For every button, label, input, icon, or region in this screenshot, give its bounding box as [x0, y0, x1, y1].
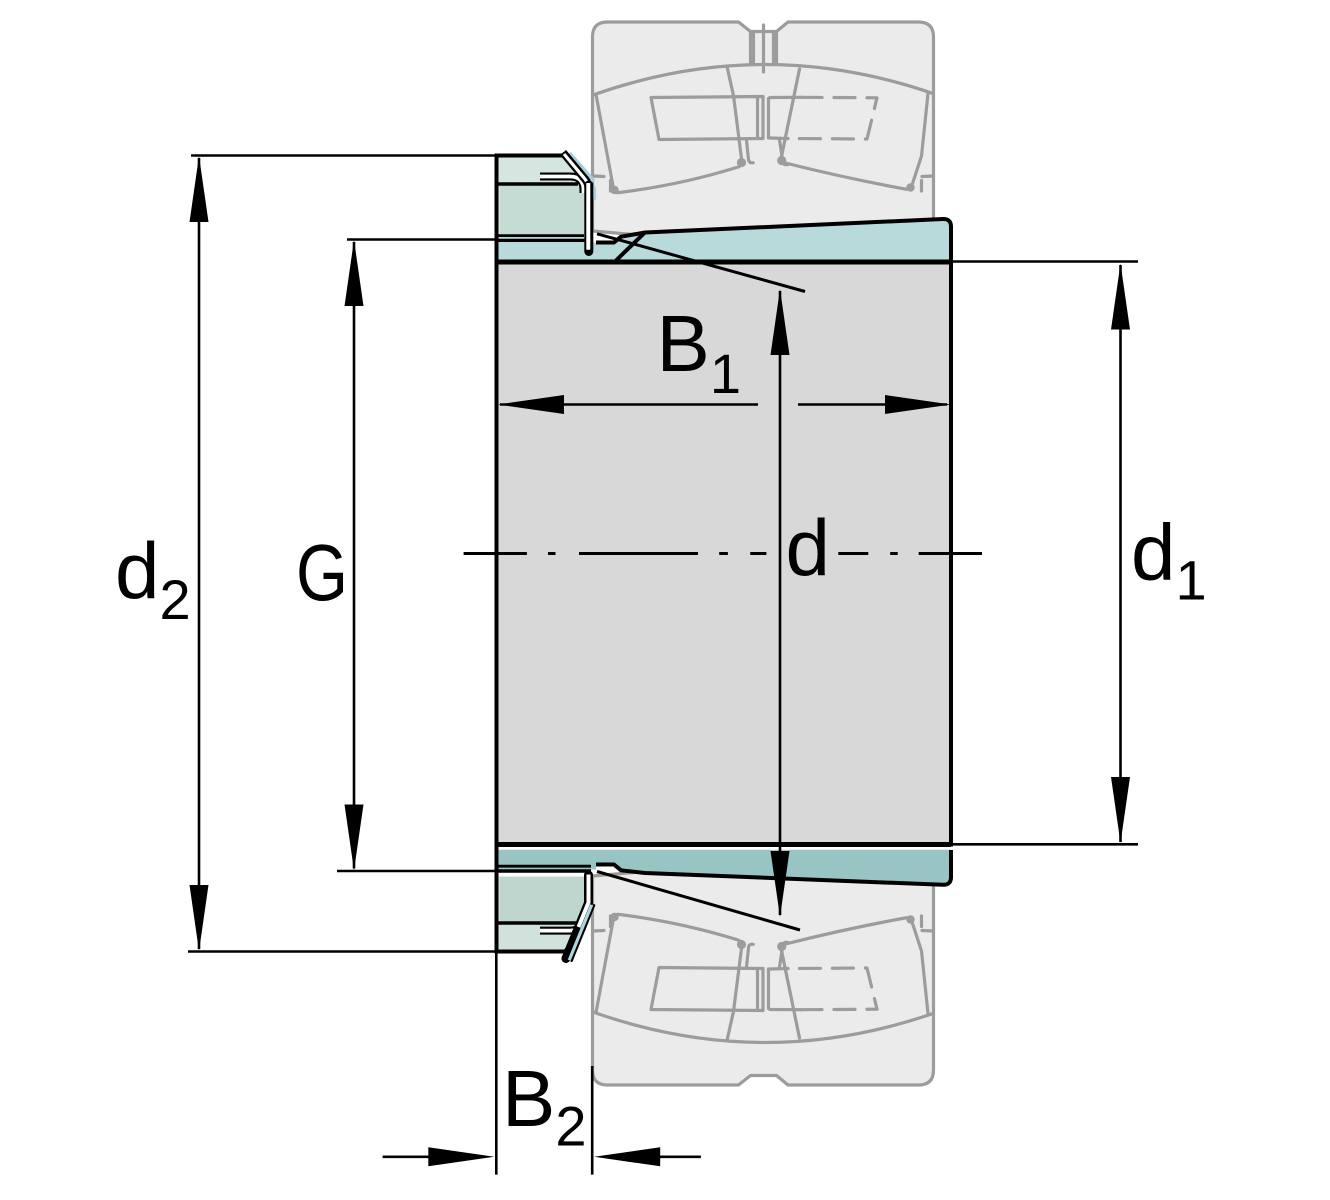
svg-text:d1: d1	[1131, 508, 1207, 612]
svg-text:d: d	[786, 503, 831, 592]
svg-text:G: G	[296, 528, 348, 617]
svg-text:B2: B2	[502, 1054, 587, 1157]
svg-text:d2: d2	[115, 527, 191, 632]
